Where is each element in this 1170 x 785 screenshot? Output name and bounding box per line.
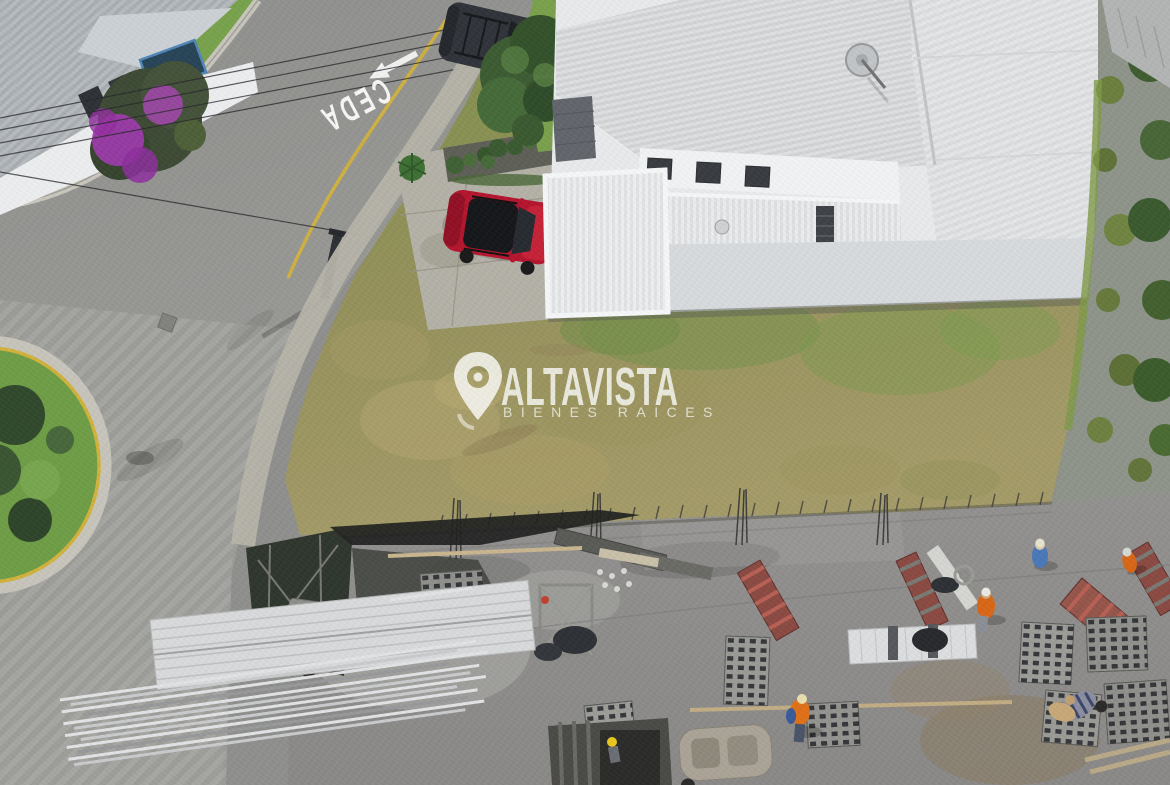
wheelbarrow bbox=[677, 724, 774, 785]
location-pin-icon bbox=[452, 350, 506, 432]
watermark: ALTAVISTA BIENES RAICES bbox=[452, 348, 762, 440]
louver-window bbox=[745, 166, 770, 187]
watermark-tagline: BIENES RAICES bbox=[503, 404, 721, 420]
aerial-photo: CEDA ALTAVISTA BIENES RAICES bbox=[0, 0, 1170, 785]
roof-vent bbox=[715, 220, 729, 234]
dark-bag bbox=[912, 628, 948, 652]
white-sheet-stack bbox=[848, 624, 977, 664]
sunroof bbox=[462, 197, 519, 254]
louver-window bbox=[696, 162, 721, 183]
stone-accent-wall bbox=[552, 96, 596, 162]
modern-house bbox=[545, 0, 1105, 322]
